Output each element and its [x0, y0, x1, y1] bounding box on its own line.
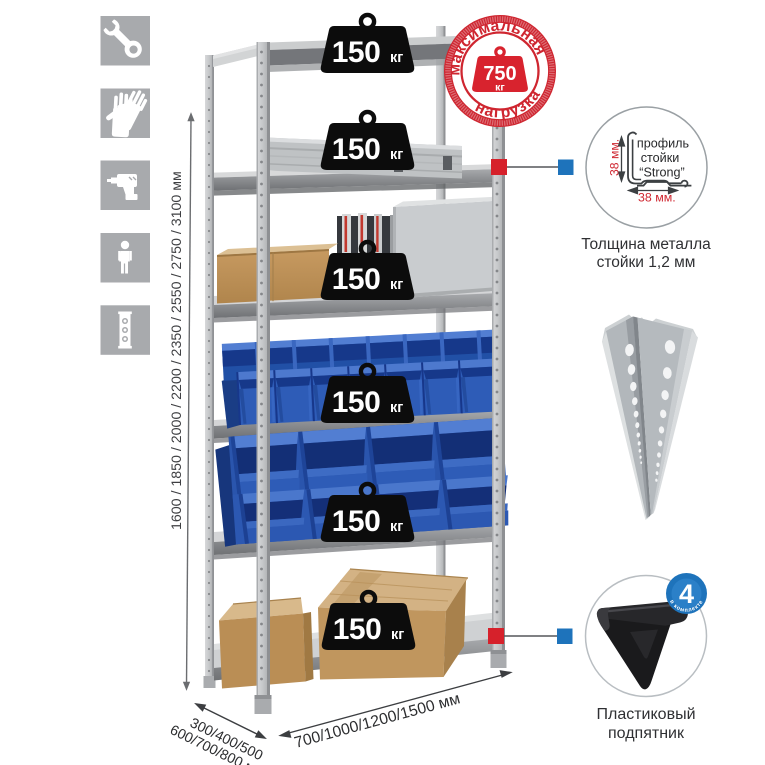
svg-text:подпятник: подпятник — [608, 725, 685, 742]
svg-text:кг: кг — [495, 82, 505, 94]
svg-text:профиль: профиль — [637, 137, 690, 151]
svg-text:Пластиковый: Пластиковый — [596, 706, 695, 723]
svg-text:4: 4 — [679, 579, 694, 609]
svg-text:стойки: стойки — [641, 151, 680, 165]
svg-text:стойки 1,2 мм: стойки 1,2 мм — [597, 254, 696, 271]
svg-text:1600 / 1850 / 2000 / 2200 / 23: 1600 / 1850 / 2000 / 2200 / 2350 / 2550 … — [169, 171, 185, 530]
svg-text:Толщина металла: Толщина металла — [581, 236, 711, 253]
svg-text:38 мм.: 38 мм. — [638, 191, 676, 205]
svg-text:“Strong”: “Strong” — [639, 166, 685, 180]
svg-text:38 мм.: 38 мм. — [608, 139, 622, 176]
